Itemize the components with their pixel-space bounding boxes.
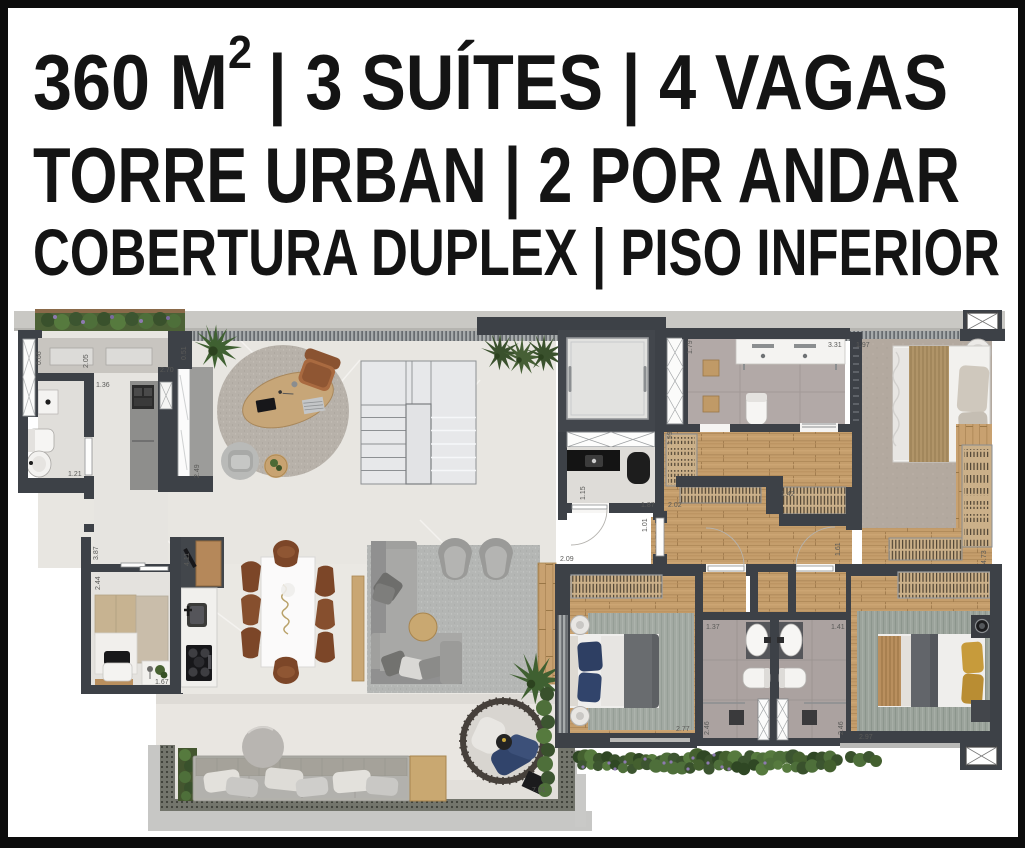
svg-text:1.87: 1.87 (641, 502, 655, 509)
svg-text:| 3 SUÍTES | 4 VAGAS: | 3 SUÍTES | 4 VAGAS (268, 38, 948, 126)
svg-text:1.99: 1.99 (667, 431, 674, 445)
svg-text:1.67: 1.67 (155, 679, 169, 686)
svg-text:7.91: 7.91 (532, 787, 546, 794)
svg-text:2.05: 2.05 (83, 354, 90, 368)
svg-text:COBERTURA DUPLEX | PISO INFERI: COBERTURA DUPLEX | PISO INFERIOR (33, 215, 1000, 291)
svg-text:4.73: 4.73 (981, 550, 988, 564)
svg-text:2.97: 2.97 (859, 734, 873, 741)
svg-text:2.02: 2.02 (668, 502, 682, 509)
svg-text:2.77: 2.77 (676, 726, 690, 733)
svg-text:2.46: 2.46 (838, 721, 845, 735)
svg-text:3.31: 3.31 (828, 342, 842, 349)
svg-text:0.66: 0.66 (36, 351, 43, 365)
svg-text:2.46: 2.46 (704, 721, 711, 735)
svg-text:1.97: 1.97 (856, 342, 870, 349)
svg-text:3.87: 3.87 (93, 546, 100, 560)
svg-text:4.11: 4.11 (184, 553, 191, 566)
svg-text:2: 2 (228, 26, 252, 78)
svg-text:1.79: 1.79 (687, 340, 694, 354)
svg-text:2.09: 2.09 (560, 556, 574, 563)
svg-text:0.51: 0.51 (181, 346, 188, 360)
svg-text:2.70: 2.70 (160, 367, 174, 374)
svg-text:1.61: 1.61 (835, 542, 842, 556)
svg-text:1.21: 1.21 (68, 471, 82, 478)
svg-text:TORRE URBAN | 2 POR ANDAR: TORRE URBAN | 2 POR ANDAR (33, 131, 960, 219)
svg-text:2.49: 2.49 (194, 464, 201, 478)
svg-text:1.01: 1.01 (642, 518, 649, 532)
svg-text:360 M: 360 M (33, 38, 228, 126)
svg-text:1.15: 1.15 (580, 486, 587, 500)
svg-text:1.36: 1.36 (96, 382, 110, 389)
svg-text:1.37: 1.37 (706, 624, 720, 631)
svg-text:1.42: 1.42 (781, 491, 795, 498)
svg-text:2.44: 2.44 (95, 576, 102, 590)
svg-text:1.41: 1.41 (831, 624, 845, 631)
